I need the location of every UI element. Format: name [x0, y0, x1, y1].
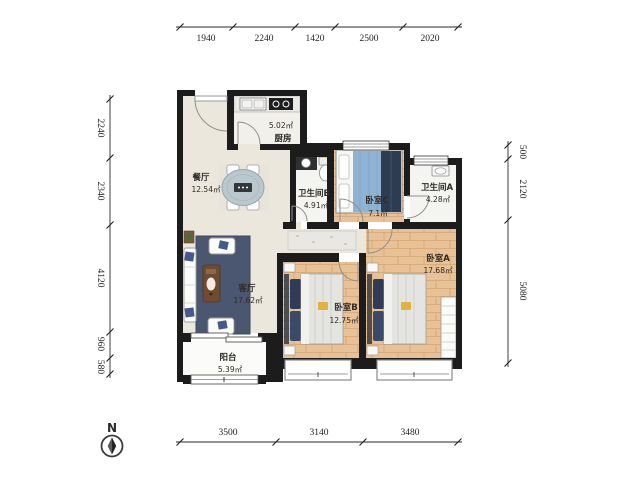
headboard: [284, 274, 289, 344]
room-name-bed-b: 卧室B: [334, 302, 357, 313]
pillow: [373, 311, 384, 341]
sliding-panel: [191, 333, 228, 338]
bed-sheet: [301, 274, 309, 344]
bedroom-c-window: [343, 141, 389, 150]
nightstand: [284, 263, 295, 272]
room-area-balcony: 5.39㎡: [218, 365, 243, 374]
dim-bottom-2: 3480: [401, 428, 420, 438]
cabinet-speckle: [296, 235, 299, 237]
dim-top-4: 2020: [421, 34, 440, 44]
wall-segment: [177, 90, 183, 382]
wall-segment: [283, 222, 291, 229]
dim-left-0: 2240: [95, 119, 105, 138]
wall-segment: [456, 158, 462, 363]
window: [343, 141, 389, 150]
sink: [302, 159, 311, 168]
room-area-bed-b: 12.75㎡: [330, 316, 359, 325]
sliding-panel: [226, 337, 262, 342]
wall-segment: [258, 375, 266, 384]
kitchen-furniture: [234, 96, 300, 112]
room-name-balcony: 阳台: [219, 352, 237, 363]
room-area-living: 17.62㎡: [234, 296, 263, 305]
wall-segment: [404, 143, 410, 196]
wall-segment: [266, 333, 277, 382]
pillow: [339, 155, 349, 179]
sink-basin-left: [242, 100, 252, 108]
sink: [435, 168, 446, 174]
floor-plan-page: 餐厅 12.54㎡ 5.02㎡ 厨房 卫生间B 4.91㎡ 卧室C 7.1㎡ 卫…: [0, 0, 640, 480]
hallway-cabinet: [288, 231, 356, 250]
wall-segment: [227, 144, 238, 150]
balcony-window: [191, 375, 258, 384]
bathroom-a-fixtures: [432, 166, 449, 176]
pillow: [290, 279, 301, 309]
bed-sheet: [384, 274, 392, 344]
room-name-living: 客厅: [237, 283, 256, 294]
dining-furniture: [219, 164, 269, 211]
room-name-bath-a: 卫生间A: [421, 182, 454, 193]
dim-right-2: 5080: [517, 282, 527, 301]
room-area-bath-b: 4.91㎡: [304, 201, 329, 210]
dim-left-4: 580: [95, 360, 105, 375]
coffee-table-decor: [210, 293, 213, 296]
wall-segment: [307, 222, 339, 229]
compass-north-label: N: [107, 421, 117, 435]
wall-segment: [404, 219, 410, 229]
dim-bottom-1: 3140: [310, 428, 329, 438]
corridor-furniture: [288, 231, 356, 250]
pillow: [290, 311, 301, 341]
wall-segment: [183, 333, 191, 342]
room-name-bath-b: 卫生间B: [298, 188, 330, 199]
wall-segment: [227, 90, 307, 96]
door-leaf: [195, 96, 227, 101]
wall-segment: [177, 90, 195, 96]
cabinet-speckle: [344, 243, 347, 245]
room-name-kitchen: 厨房: [274, 133, 291, 144]
dim-top-1: 2240: [255, 34, 274, 44]
wall-segment: [359, 222, 368, 229]
dim-top-2: 1420: [306, 34, 325, 44]
room-area-bed-c: 7.1㎡: [368, 209, 388, 218]
dim-bottom-0: 3500: [219, 428, 238, 438]
table-decor: [246, 187, 248, 189]
wall-segment: [300, 96, 307, 150]
sofa-pillow: [185, 307, 195, 317]
window: [414, 156, 448, 165]
room-name-bed-a: 卧室A: [426, 253, 450, 264]
coffee-table-decor: [207, 278, 216, 291]
coffee-table-tray: [206, 269, 216, 274]
plant: [186, 234, 193, 241]
bathroom-a-window: [414, 156, 448, 165]
headboard: [367, 274, 372, 344]
bedroom-a-bay-window: [377, 360, 452, 380]
cabinet-speckle: [330, 236, 333, 238]
wall-segment: [260, 144, 307, 150]
wall-segment: [392, 222, 462, 229]
dim-left-1: 2340: [95, 182, 105, 201]
bedroom-b-bay-window: [285, 360, 351, 380]
pillow: [373, 279, 384, 309]
wall-segment: [359, 253, 366, 363]
dim-right-0: 500: [517, 145, 527, 160]
room-area-kitchen: 5.02㎡: [269, 121, 294, 130]
table-decor: [242, 187, 244, 189]
nightstand: [367, 346, 378, 355]
floor-plan-canvas: 餐厅 12.54㎡ 5.02㎡ 厨房 卫生间B 4.91㎡ 卧室C 7.1㎡ 卫…: [0, 0, 640, 480]
bed-accent: [401, 302, 411, 310]
table-decor: [238, 187, 240, 189]
wall-segment: [183, 375, 191, 384]
nightstand: [367, 263, 378, 272]
wall-segment: [351, 358, 377, 369]
dim-left-2: 4120: [95, 269, 105, 288]
wall-segment: [290, 150, 296, 229]
wall-segment: [290, 150, 334, 157]
dim-top-0: 1940: [197, 34, 216, 44]
wall-segment: [277, 253, 339, 262]
bed-accent: [318, 302, 328, 310]
room-area-dining: 12.54㎡: [192, 185, 221, 194]
room-name-bed-c: 卧室C: [365, 195, 388, 206]
dim-left-3: 960: [95, 337, 105, 352]
sink-basin-right: [254, 100, 264, 108]
sofa-pillow: [184, 251, 194, 261]
wall-segment: [227, 96, 234, 144]
room-area-bath-a: 4.28㎡: [426, 195, 451, 204]
room-name-dining: 餐厅: [191, 172, 210, 183]
armchair-pillow: [217, 320, 227, 329]
dim-right-1: 2120: [517, 180, 527, 199]
dim-top-3: 2500: [360, 34, 379, 44]
room-area-bed-a: 17.68㎡: [424, 266, 453, 275]
cabinet-speckle: [312, 241, 315, 243]
nightstand: [284, 346, 295, 355]
